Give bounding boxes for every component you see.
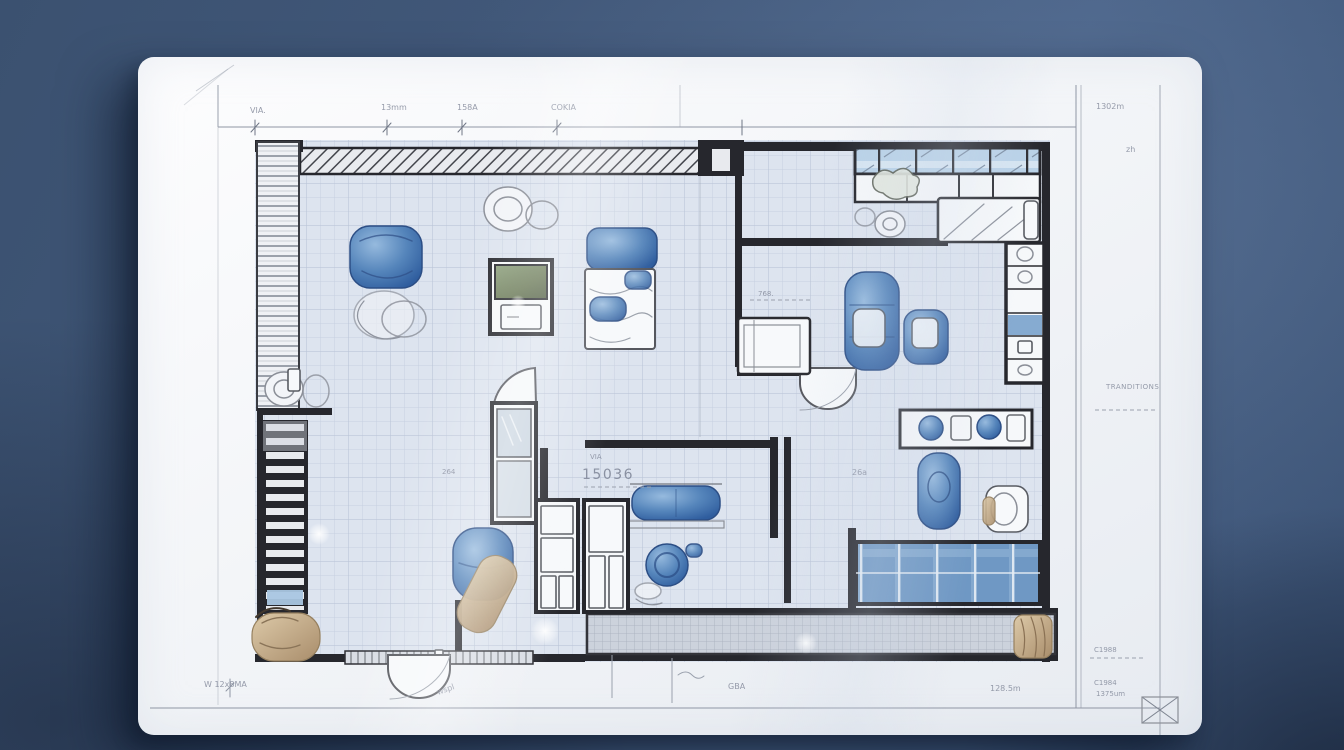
kitchen-blue-drawer — [1008, 315, 1042, 335]
label-room-15036: 15036 — [582, 467, 634, 483]
suite-bed-pillow — [1024, 201, 1038, 239]
frame-corner-diag-2 — [184, 69, 228, 105]
vanity-sink-1 — [919, 416, 943, 440]
daybed-pillow — [590, 297, 626, 321]
glow-2 — [531, 617, 559, 645]
wall-suite-room-bottom — [742, 238, 948, 246]
frame-corner-diag-1 — [196, 65, 234, 91]
cabinet-2-pane-c — [609, 556, 623, 608]
label-right-c1988: C1988 — [1094, 646, 1117, 654]
wall-centerroom-right — [770, 437, 778, 538]
living-chair-round — [646, 544, 688, 586]
floor-pillow-beige — [252, 613, 320, 661]
vanity-tray-1 — [951, 416, 971, 440]
label-264: 264 — [442, 468, 456, 476]
wall-centerroom-top — [585, 440, 778, 448]
label-top-right: 1302m — [1096, 102, 1124, 111]
table-sketch-outer — [484, 187, 532, 231]
label-top-4: COKIA — [551, 103, 576, 112]
glow-3 — [795, 632, 817, 654]
living-stool-sketch — [635, 583, 661, 599]
plant-photo — [495, 265, 547, 299]
kitchen-appliance-3 — [1018, 341, 1032, 353]
label-bottom-w: W 12x8MA — [204, 680, 247, 689]
bathroom-bidet — [918, 453, 960, 529]
cabinet-2-pane-b — [589, 556, 605, 608]
label-top-2: 13mm — [381, 103, 407, 112]
label-26a: 26a — [852, 468, 867, 477]
vanity-sink-2 — [977, 415, 1001, 439]
wall-right — [1042, 142, 1050, 662]
label-right-mid: TRANDITIONS — [1105, 383, 1159, 391]
wall-bath-divider — [258, 408, 332, 415]
suite-vase — [875, 211, 905, 237]
daybed-headboard — [587, 228, 657, 270]
blueprint-board: VIA.13mm158ACOKIA1302mzhTRANDITIONSC1988… — [138, 57, 1202, 735]
mirror-pane-bottom — [497, 461, 531, 517]
daybed-accent — [625, 271, 651, 289]
label-top-1: VIA. — [250, 106, 266, 115]
label-room-via: VIA — [590, 453, 602, 461]
rug-sketch-outer — [354, 291, 414, 339]
wall-top-hatched — [300, 148, 704, 174]
cabinet-1-pane-a — [541, 506, 573, 534]
stairs-glass-pane — [267, 590, 303, 605]
toilet-lid-tan — [983, 497, 995, 525]
cabinet-1-pane-d — [559, 576, 573, 608]
bench-right — [441, 651, 533, 664]
floor-plan-drawing: VIA.13mm158ACOKIA1302mzhTRANDITIONSC1988… — [138, 57, 1202, 735]
mirror-pane-top — [497, 409, 531, 457]
terrace-mesh — [587, 614, 1055, 654]
vanity-tray-2 — [1007, 415, 1025, 441]
wall-background: VIA.13mm158ACOKIA1302mzhTRANDITIONSC1988… — [0, 0, 1344, 750]
junction-gap — [712, 149, 730, 171]
cabinet-1-pane-c — [541, 576, 556, 608]
label-bottom-1285: 128.5m — [990, 684, 1021, 693]
living-chair-arm — [686, 544, 702, 557]
cabinet-2-pane-a — [589, 506, 623, 552]
label-top-3: 158A — [457, 103, 478, 112]
wall-bathroom-left — [784, 437, 791, 603]
glow-1 — [308, 523, 330, 545]
stairs-treads — [266, 424, 304, 610]
squiggle-bottom — [678, 672, 704, 678]
glow-4 — [510, 295, 526, 311]
label-right-c1984: C1984 — [1094, 679, 1117, 687]
label-right-zh: zh — [1126, 145, 1135, 154]
label-right-1375um: 1375um — [1096, 690, 1125, 698]
wc-cistern — [288, 369, 300, 391]
cabinet-1-pane-b — [541, 538, 573, 572]
label-bottom-gba: GBA — [728, 682, 746, 691]
bedroom-bed — [738, 318, 810, 374]
stairs-top-light — [263, 421, 307, 451]
bedroom-chair-seat — [912, 318, 938, 348]
bedroom-couch-seat — [853, 309, 885, 347]
label-768: 768. — [758, 290, 774, 298]
